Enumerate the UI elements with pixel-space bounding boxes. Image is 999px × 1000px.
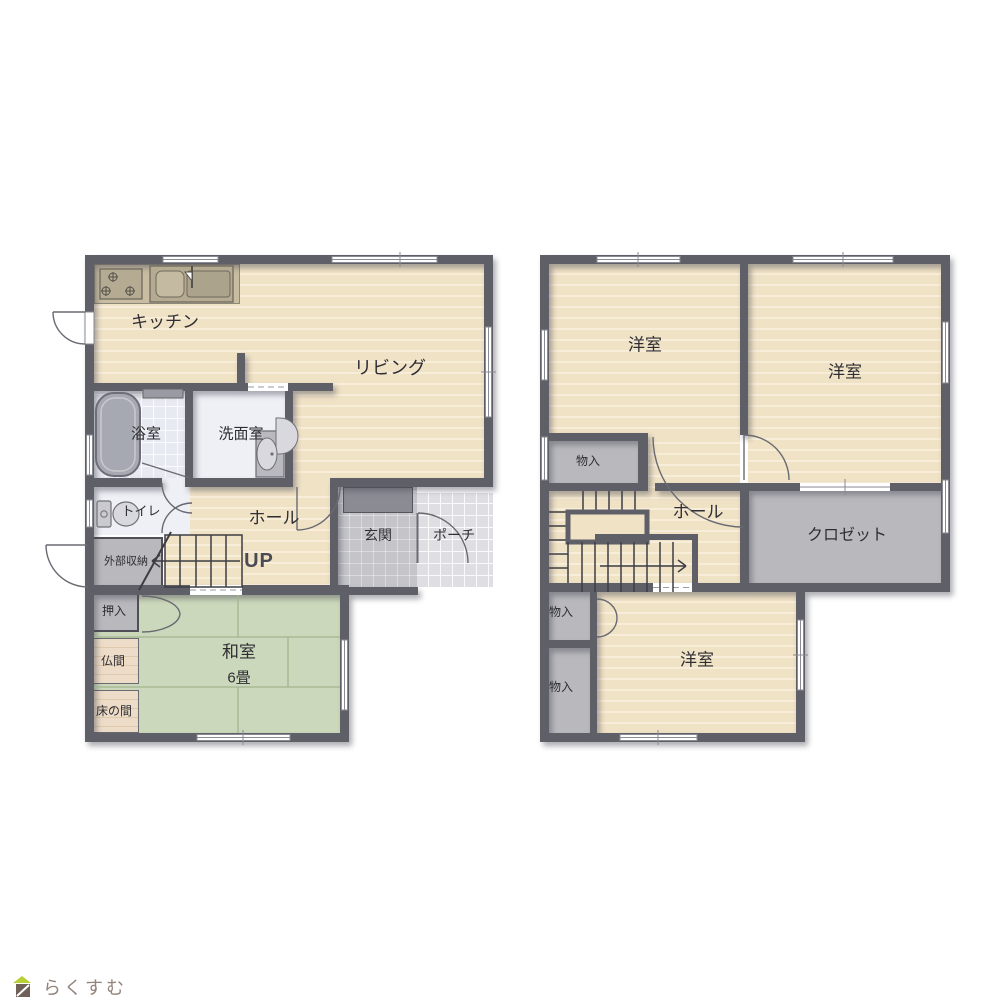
label-up: UP [244, 551, 274, 571]
label-closet: クロゼット [807, 528, 887, 544]
label-washitsu-size: 6畳 [227, 671, 250, 686]
label-bedroom-s: 洋室 [680, 652, 714, 669]
label-hall-1f: ホール [249, 510, 300, 527]
label-entrance: 玄関 [364, 528, 392, 542]
house-icon [12, 974, 36, 998]
label-bedroom-ne: 洋室 [828, 364, 862, 381]
label-porch: ポーチ [433, 528, 475, 542]
logo-text: らくすむ [43, 971, 127, 1000]
label-storage-lower: 物入 [549, 681, 573, 693]
label-kitchen: キッチン [131, 314, 199, 331]
label-bedroom-nw: 洋室 [628, 337, 662, 354]
label-living: リビング [354, 359, 426, 377]
label-washroom: 洗面室 [218, 427, 263, 442]
label-storage-mid: 物入 [549, 606, 573, 618]
floor-plan-canvas: キッチン リビング 浴室 洗面室 トイレ ホール UP 外部収納 玄関 ポーチ … [0, 0, 999, 1000]
walls-layer [0, 0, 999, 1000]
label-bath: 浴室 [131, 427, 161, 442]
label-hall-2f: ホール [673, 504, 724, 521]
label-washitsu: 和室 [222, 644, 256, 661]
label-tokonoma: 床の間 [96, 705, 132, 717]
logo: らくすむ [12, 971, 127, 1000]
label-butsuma: 仏間 [101, 655, 125, 667]
label-oshiire: 押入 [102, 605, 126, 617]
label-storage-upper: 物入 [576, 455, 600, 467]
label-external-storage: 外部収納 [104, 557, 148, 568]
label-toilet: トイレ [121, 505, 160, 518]
